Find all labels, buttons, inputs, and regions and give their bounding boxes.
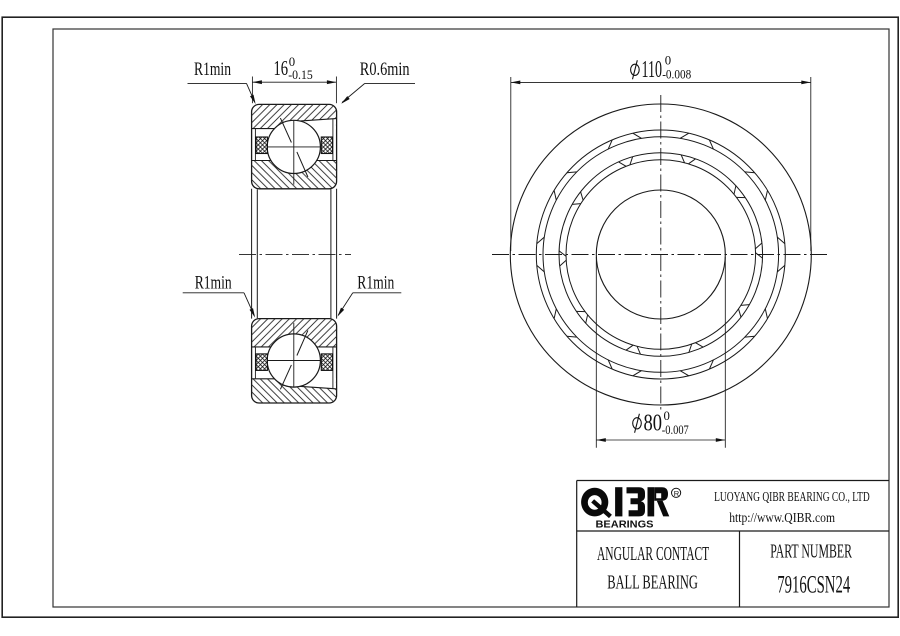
svg-text:80: 80 bbox=[644, 411, 663, 437]
svg-text:110: 110 bbox=[642, 57, 663, 83]
svg-text:0: 0 bbox=[665, 53, 671, 68]
svg-text:LUOYANG QIBR BEARING CO., LTD: LUOYANG QIBR BEARING CO., LTD bbox=[714, 490, 870, 505]
svg-text:-0.007: -0.007 bbox=[662, 422, 689, 437]
svg-text:ANGULAR CONTACT: ANGULAR CONTACT bbox=[597, 543, 709, 565]
svg-text:-0.15: -0.15 bbox=[288, 67, 313, 82]
svg-text:PART NUMBER: PART NUMBER bbox=[770, 541, 852, 563]
svg-text:BALL BEARING: BALL BEARING bbox=[607, 571, 698, 593]
svg-text:R1min: R1min bbox=[194, 59, 231, 80]
svg-text:R1min: R1min bbox=[195, 272, 232, 293]
svg-text:16: 16 bbox=[274, 56, 289, 80]
svg-text:BEARINGS: BEARINGS bbox=[596, 520, 654, 531]
svg-text:R: R bbox=[674, 489, 680, 498]
svg-text:0: 0 bbox=[664, 408, 670, 423]
svg-text:-0.008: -0.008 bbox=[662, 67, 691, 82]
svg-text:7916CSN24: 7916CSN24 bbox=[777, 571, 850, 598]
svg-text:R1min: R1min bbox=[357, 272, 394, 293]
svg-text:http://www.QIBR.com: http://www.QIBR.com bbox=[729, 511, 835, 526]
svg-text:R0.6min: R0.6min bbox=[360, 59, 410, 80]
